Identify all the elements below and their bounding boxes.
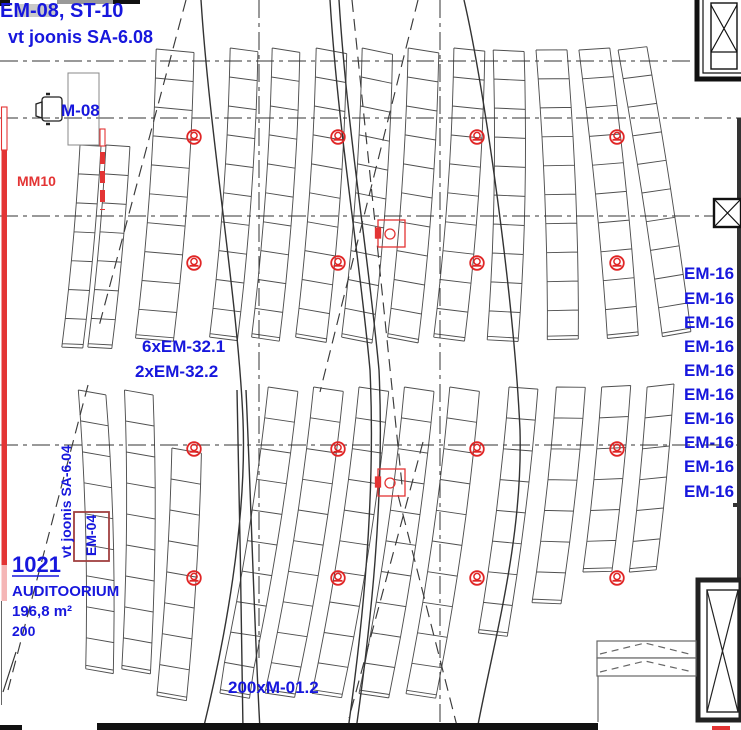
svg-text:MM10: MM10 (17, 173, 56, 189)
svg-text:EM-16: EM-16 (684, 482, 734, 501)
svg-text:EM-16: EM-16 (684, 457, 734, 476)
svg-text:196,8 m²: 196,8 m² (12, 603, 72, 620)
svg-text:EM-16: EM-16 (684, 361, 734, 380)
svg-text:EM-16: EM-16 (684, 385, 734, 404)
svg-text:EM-16: EM-16 (684, 289, 734, 308)
svg-text:EM-16: EM-16 (684, 409, 734, 428)
svg-text:EM-08, ST-10: EM-08, ST-10 (0, 0, 123, 22)
svg-text:1021: 1021 (12, 552, 61, 577)
svg-text:EM-04: EM-04 (83, 515, 99, 556)
svg-text:200: 200 (12, 623, 36, 639)
svg-text:EM-16: EM-16 (684, 433, 734, 452)
svg-text:200xM-01.2: 200xM-01.2 (228, 678, 319, 697)
svg-text:2xEM-32.2: 2xEM-32.2 (135, 362, 218, 381)
svg-text:M-08: M-08 (61, 101, 100, 120)
svg-text:6xEM-32.1: 6xEM-32.1 (142, 337, 225, 356)
svg-text:vt joonis SA-6.08: vt joonis SA-6.08 (8, 27, 153, 47)
svg-text:EM-16: EM-16 (684, 313, 734, 332)
svg-text:AUDITOORIUM: AUDITOORIUM (12, 583, 119, 600)
svg-text:EM-16: EM-16 (684, 337, 734, 356)
svg-text:EM-16: EM-16 (684, 264, 734, 283)
svg-text:vt joonis SA-6.04: vt joonis SA-6.04 (58, 445, 74, 558)
